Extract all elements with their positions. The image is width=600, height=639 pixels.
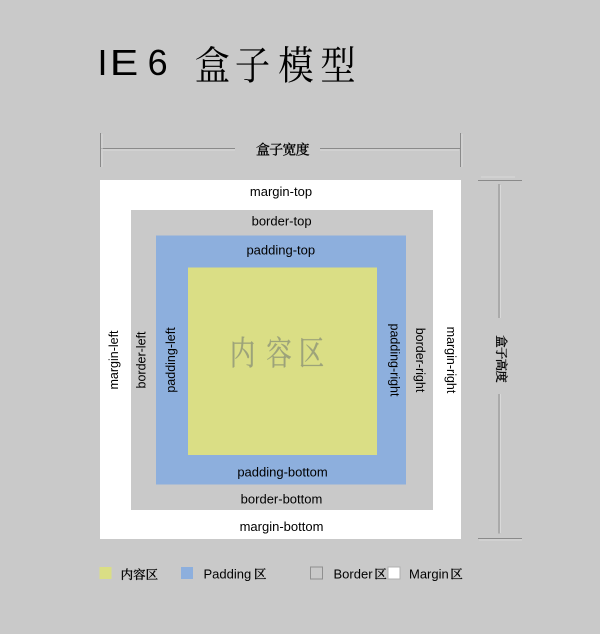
svg-text:I: I [98, 42, 108, 83]
svg-text:margin-bottom: margin-bottom [240, 519, 324, 534]
svg-text:border-top: border-top [252, 214, 312, 229]
svg-text:border-bottom: border-bottom [241, 492, 323, 507]
svg-text:margin-left: margin-left [107, 330, 121, 390]
svg-text:padding-left: padding-left [164, 327, 178, 393]
svg-text:margin-right: margin-right [444, 327, 458, 394]
svg-text:border-left: border-left [135, 331, 149, 388]
svg-text:E: E [110, 43, 138, 83]
svg-text:6: 6 [148, 42, 168, 83]
svg-text:margin-top: margin-top [250, 184, 312, 199]
svg-text:padding-top: padding-top [246, 243, 315, 258]
svg-text:padding-right: padding-right [388, 324, 402, 397]
svg-text:Padding: Padding [204, 567, 252, 582]
svg-text:Margin: Margin [409, 567, 449, 582]
svg-text:Border: Border [334, 567, 374, 582]
svg-text:padding-bottom: padding-bottom [237, 465, 327, 480]
svg-text:border-right: border-right [413, 328, 427, 393]
